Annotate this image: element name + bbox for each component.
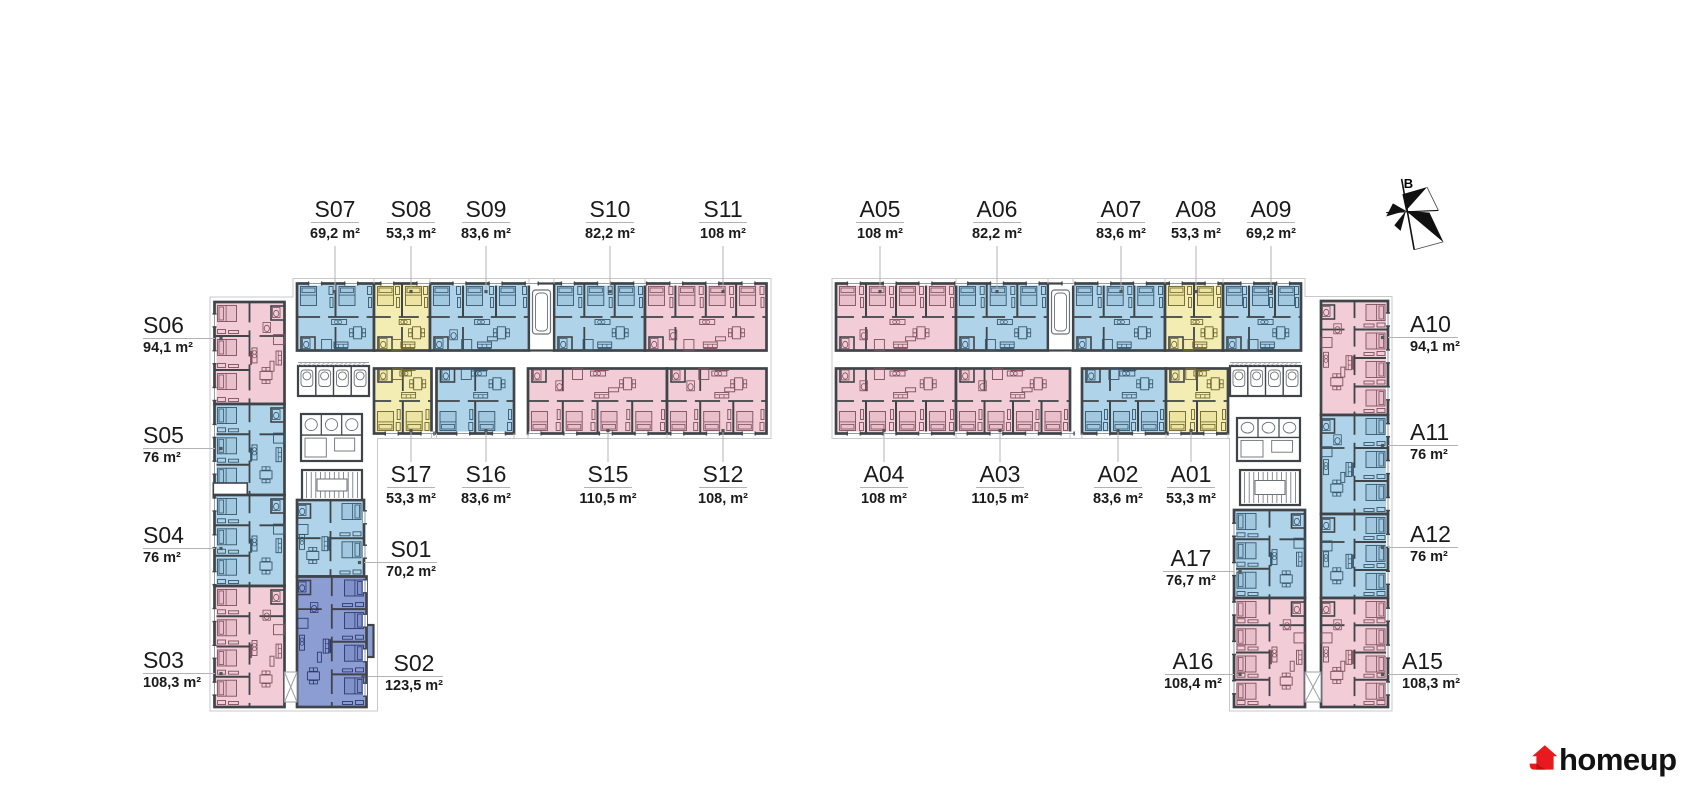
svg-text:S01: S01 bbox=[391, 536, 432, 562]
svg-text:A03: A03 bbox=[980, 461, 1021, 487]
svg-text:A07: A07 bbox=[1101, 196, 1142, 222]
svg-text:108 m²: 108 m² bbox=[861, 491, 907, 507]
svg-text:S15: S15 bbox=[588, 461, 629, 487]
svg-text:69,2 m²: 69,2 m² bbox=[310, 226, 360, 242]
svg-text:70,2 m²: 70,2 m² bbox=[386, 564, 436, 580]
svg-text:S11: S11 bbox=[703, 196, 742, 222]
svg-text:108,3 m²: 108,3 m² bbox=[1402, 676, 1460, 692]
svg-text:83,6 m²: 83,6 m² bbox=[1093, 491, 1143, 507]
svg-text:76 m²: 76 m² bbox=[143, 550, 181, 566]
svg-text:S17: S17 bbox=[391, 461, 432, 487]
svg-text:homeup: homeup bbox=[1559, 742, 1677, 777]
svg-text:A04: A04 bbox=[864, 461, 905, 487]
svg-text:108, m²: 108, m² bbox=[698, 491, 748, 507]
svg-text:B: B bbox=[1404, 176, 1413, 191]
svg-text:108,3 m²: 108,3 m² bbox=[143, 675, 201, 691]
svg-text:A16: A16 bbox=[1173, 648, 1214, 674]
svg-text:108,4 m²: 108,4 m² bbox=[1164, 676, 1222, 692]
svg-text:94,1 m²: 94,1 m² bbox=[1410, 339, 1460, 355]
svg-text:A10: A10 bbox=[1410, 311, 1451, 337]
svg-text:83,6 m²: 83,6 m² bbox=[1096, 226, 1146, 242]
svg-text:S03: S03 bbox=[143, 647, 184, 673]
svg-text:83,6 m²: 83,6 m² bbox=[461, 226, 511, 242]
svg-text:110,5 m²: 110,5 m² bbox=[971, 491, 1028, 507]
svg-text:82,2 m²: 82,2 m² bbox=[972, 226, 1022, 242]
svg-text:A01: A01 bbox=[1171, 461, 1212, 487]
svg-text:110,5 m²: 110,5 m² bbox=[579, 491, 636, 507]
svg-text:76 m²: 76 m² bbox=[143, 450, 181, 466]
svg-text:108 m²: 108 m² bbox=[700, 226, 746, 242]
svg-text:S04: S04 bbox=[143, 522, 184, 548]
svg-text:S05: S05 bbox=[143, 422, 184, 448]
svg-text:53,3 m²: 53,3 m² bbox=[386, 226, 436, 242]
svg-text:S16: S16 bbox=[466, 461, 507, 487]
svg-text:108 m²: 108 m² bbox=[857, 226, 903, 242]
svg-text:A02: A02 bbox=[1098, 461, 1139, 487]
svg-text:A17: A17 bbox=[1171, 545, 1212, 571]
svg-text:A09: A09 bbox=[1251, 196, 1292, 222]
svg-text:53,3 m²: 53,3 m² bbox=[1166, 491, 1216, 507]
svg-text:A11: A11 bbox=[1410, 419, 1449, 445]
svg-text:S02: S02 bbox=[394, 650, 435, 676]
svg-text:S06: S06 bbox=[143, 312, 184, 338]
svg-text:53,3 m²: 53,3 m² bbox=[386, 491, 436, 507]
svg-text:S07: S07 bbox=[315, 196, 356, 222]
svg-text:A15: A15 bbox=[1402, 648, 1443, 674]
svg-text:76,7 m²: 76,7 m² bbox=[1166, 573, 1216, 589]
svg-text:123,5 m²: 123,5 m² bbox=[385, 678, 443, 694]
svg-text:69,2 m²: 69,2 m² bbox=[1246, 226, 1296, 242]
svg-text:A05: A05 bbox=[860, 196, 901, 222]
svg-text:76 m²: 76 m² bbox=[1410, 447, 1448, 463]
svg-text:53,3 m²: 53,3 m² bbox=[1171, 226, 1221, 242]
svg-text:83,6 m²: 83,6 m² bbox=[461, 491, 511, 507]
svg-text:94,1 m²: 94,1 m² bbox=[143, 340, 193, 356]
svg-text:S12: S12 bbox=[703, 461, 744, 487]
svg-text:S09: S09 bbox=[466, 196, 507, 222]
svg-text:S10: S10 bbox=[590, 196, 631, 222]
svg-text:A12: A12 bbox=[1410, 521, 1451, 547]
svg-text:A06: A06 bbox=[977, 196, 1018, 222]
svg-text:S08: S08 bbox=[391, 196, 432, 222]
svg-text:82,2 m²: 82,2 m² bbox=[585, 226, 635, 242]
svg-text:76 m²: 76 m² bbox=[1410, 549, 1448, 565]
svg-text:A08: A08 bbox=[1176, 196, 1217, 222]
